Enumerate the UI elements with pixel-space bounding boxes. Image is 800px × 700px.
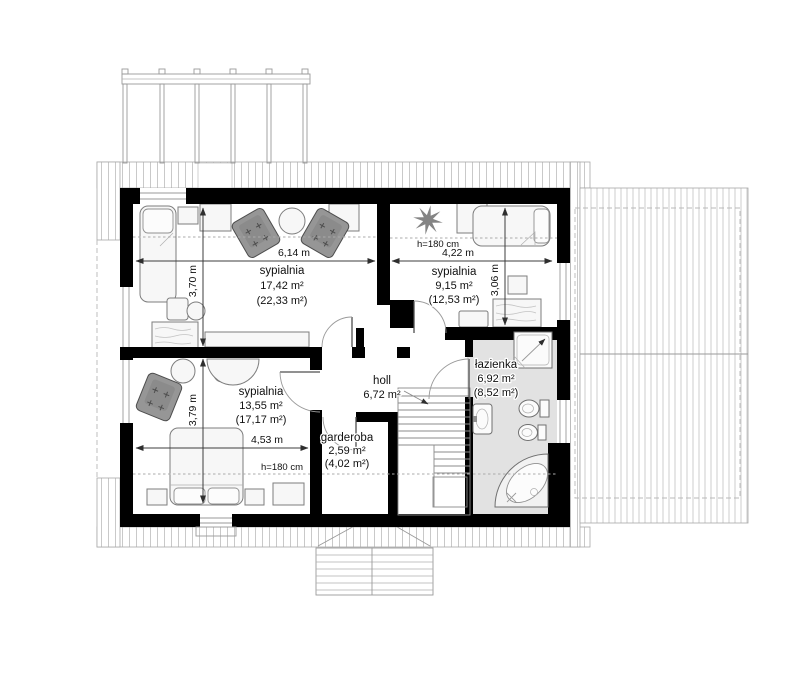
- bedroom1-furniture: [140, 204, 359, 348]
- plant: [413, 205, 443, 235]
- dim-bedroom1-depth: 3,70 m: [187, 265, 199, 297]
- window-west-bedroom3: [120, 360, 133, 423]
- window-west-bedroom1: [120, 287, 133, 347]
- chimney: [390, 300, 414, 328]
- exterior-entry-stairs: [316, 548, 433, 595]
- wall-stub-hall-east: [397, 347, 410, 358]
- room-area-roof: (12,53 m²): [429, 294, 480, 306]
- room-area: 2,59 m²: [328, 445, 366, 457]
- toilet: [519, 400, 549, 417]
- dormer-opening: [198, 163, 232, 188]
- bed-pillow-right: [208, 488, 239, 504]
- wall-bathroom-west-upper: [465, 327, 473, 357]
- room-name: sypialnia: [239, 386, 284, 398]
- floor-plan-canvas: sypialnia 17,42 m² (22,33 m²) sypialnia …: [0, 0, 800, 700]
- height-note-bedroom2: h=180 cm: [417, 239, 459, 250]
- wall-stairwell-west: [388, 412, 398, 514]
- room-name: holl: [373, 375, 391, 387]
- label-bedroom1: sypialnia 17,42 m² (22,33 m²): [257, 265, 308, 307]
- wall-bedroom3-east-upper: [310, 358, 322, 370]
- dresser: [273, 483, 304, 505]
- stool: [187, 302, 205, 320]
- side-table: [508, 276, 527, 294]
- label-bedroom2: sypialnia 9,15 m² (12,53 m²): [429, 266, 480, 306]
- low-cabinet: [205, 332, 309, 347]
- window-north-bedroom1: [140, 188, 186, 204]
- label-bathroom: łazienka 6,92 m² (8,52 m²): [474, 359, 519, 399]
- stair-direction-arrow: [404, 391, 428, 404]
- window-east-bedroom2: [557, 263, 570, 320]
- room-area: 9,15 m²: [435, 280, 473, 292]
- bidet: [519, 425, 547, 441]
- door-bedroom3: [280, 372, 320, 412]
- stair-landing: [433, 477, 467, 507]
- nightstand: [178, 207, 198, 224]
- desk-chair: [459, 311, 488, 327]
- door-bathroom: [429, 359, 469, 399]
- bed-pillow-left: [174, 488, 205, 504]
- desk-chair: [167, 298, 188, 320]
- nightstand-right: [245, 489, 264, 505]
- window-east-bathroom: [557, 400, 570, 443]
- railing-posts: [122, 69, 308, 163]
- room-area: 17,42 m²: [260, 280, 304, 292]
- garage-roof: [580, 188, 748, 523]
- roof-band-left-lower: [97, 478, 120, 547]
- label-bedroom3: sypialnia 13,55 m² (17,17 m²): [236, 386, 287, 426]
- wall-east-thickening: [548, 443, 557, 514]
- interior-staircase: [398, 388, 470, 515]
- dim-bedroom3-depth: 3,79 m: [187, 394, 199, 426]
- shower: [514, 332, 552, 368]
- armchair-1: [230, 207, 281, 260]
- room-area: 6,72 m²: [363, 389, 401, 401]
- washbasin: [473, 404, 492, 434]
- room-area-roof: (17,17 m²): [236, 414, 287, 426]
- wall-bedroom3-east-lower: [310, 410, 322, 514]
- wall-exterior-south: [120, 514, 570, 527]
- door-bedroom1: [322, 317, 352, 347]
- room-name: sypialnia: [260, 265, 305, 277]
- roof-band-top: [97, 162, 590, 188]
- floor-plan-page: sypialnia 17,42 m² (22,33 m²) sypialnia …: [0, 0, 800, 700]
- dim-bedroom1-width: 6,14 m: [278, 247, 310, 259]
- room-area-roof: (4,02 m²): [325, 458, 370, 470]
- dim-bedroom3-width: 4,53 m: [251, 434, 283, 446]
- console-half-round: [207, 359, 259, 385]
- wall-bedroom1-south: [120, 347, 322, 358]
- room-area: 13,55 m²: [239, 400, 283, 412]
- roof-band-left-upper: [97, 162, 120, 240]
- nightstand-left: [147, 489, 167, 505]
- wall-exterior-east: [557, 188, 570, 527]
- dim-bedroom2-depth: 3,06 m: [489, 264, 501, 296]
- label-hall: holl 6,72 m²: [363, 375, 401, 401]
- round-table: [279, 208, 305, 234]
- balcony-railing: [122, 69, 310, 163]
- wall-bedroom1-bedroom2: [377, 188, 390, 305]
- wardrobe-a: [200, 204, 231, 231]
- room-area-roof: (8,52 m²): [474, 387, 519, 399]
- room-name: łazienka: [475, 359, 518, 371]
- room-area: 6,92 m²: [477, 373, 515, 385]
- wall-stub-hall-west: [352, 347, 365, 358]
- wall-bathroom-west-lower: [465, 397, 473, 514]
- room-name: garderoba: [321, 432, 374, 444]
- roof-band-bottom: [97, 527, 590, 547]
- round-table: [171, 359, 195, 383]
- label-wardrobe: garderoba 2,59 m² (4,02 m²): [321, 432, 374, 470]
- room-area-roof: (22,33 m²): [257, 295, 308, 307]
- wall-exterior-north: [120, 188, 570, 204]
- height-note-bedroom3: h=180 cm: [261, 462, 303, 473]
- room-name: sypialnia: [432, 266, 477, 278]
- bedroom3-furniture: [135, 359, 304, 505]
- bed-pillow: [143, 209, 173, 233]
